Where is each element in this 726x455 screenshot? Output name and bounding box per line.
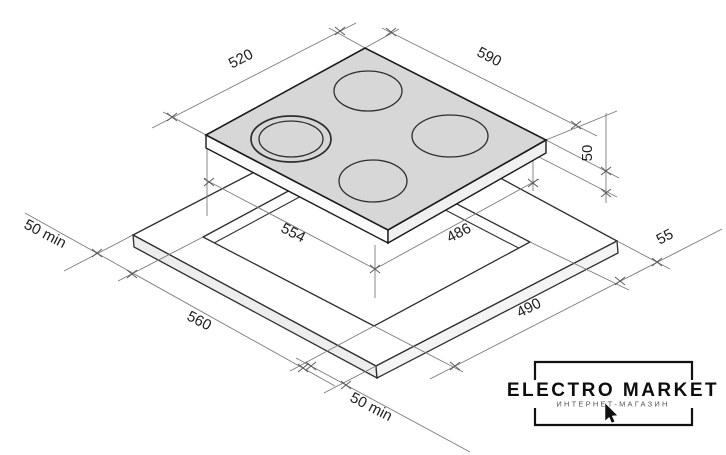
ext-50-bottom xyxy=(537,156,617,197)
dim-label-hob-width: 590 xyxy=(474,44,504,71)
countertop-front-left-side xyxy=(133,235,377,378)
dim-label-clearance-right: 55 xyxy=(654,226,677,249)
dim-label-clearance-side: 50 min xyxy=(21,216,69,252)
dim-label-clearance-front: 50 min xyxy=(347,389,395,425)
diagram-canvas: 520 590 50 554 486 55 50 min 560 490 50 … xyxy=(0,0,726,455)
logo-frame-top xyxy=(535,362,692,380)
dim-label-body-depth: 486 xyxy=(444,220,474,247)
logo: ELECTRO MARKET ИНТЕРНЕТ-МАГАЗИН xyxy=(507,362,719,425)
ext-590-top xyxy=(365,29,399,48)
dim-label-hob-depth: 520 xyxy=(226,46,256,73)
dim-label-cutout-width: 560 xyxy=(184,308,214,335)
logo-title: ELECTRO MARKET xyxy=(507,380,719,401)
dim-label-hob-height: 50 xyxy=(579,145,596,162)
ext-counter-front xyxy=(324,366,376,393)
logo-frame-bottom xyxy=(535,408,692,425)
hob-installation-diagram: 520 590 50 554 486 55 50 min 560 490 50 … xyxy=(0,0,726,455)
ext-520-top xyxy=(329,28,365,48)
dim-label-body-width: 554 xyxy=(278,220,308,247)
logo-subtitle: ИНТЕРНЕТ-МАГАЗИН xyxy=(556,400,669,409)
